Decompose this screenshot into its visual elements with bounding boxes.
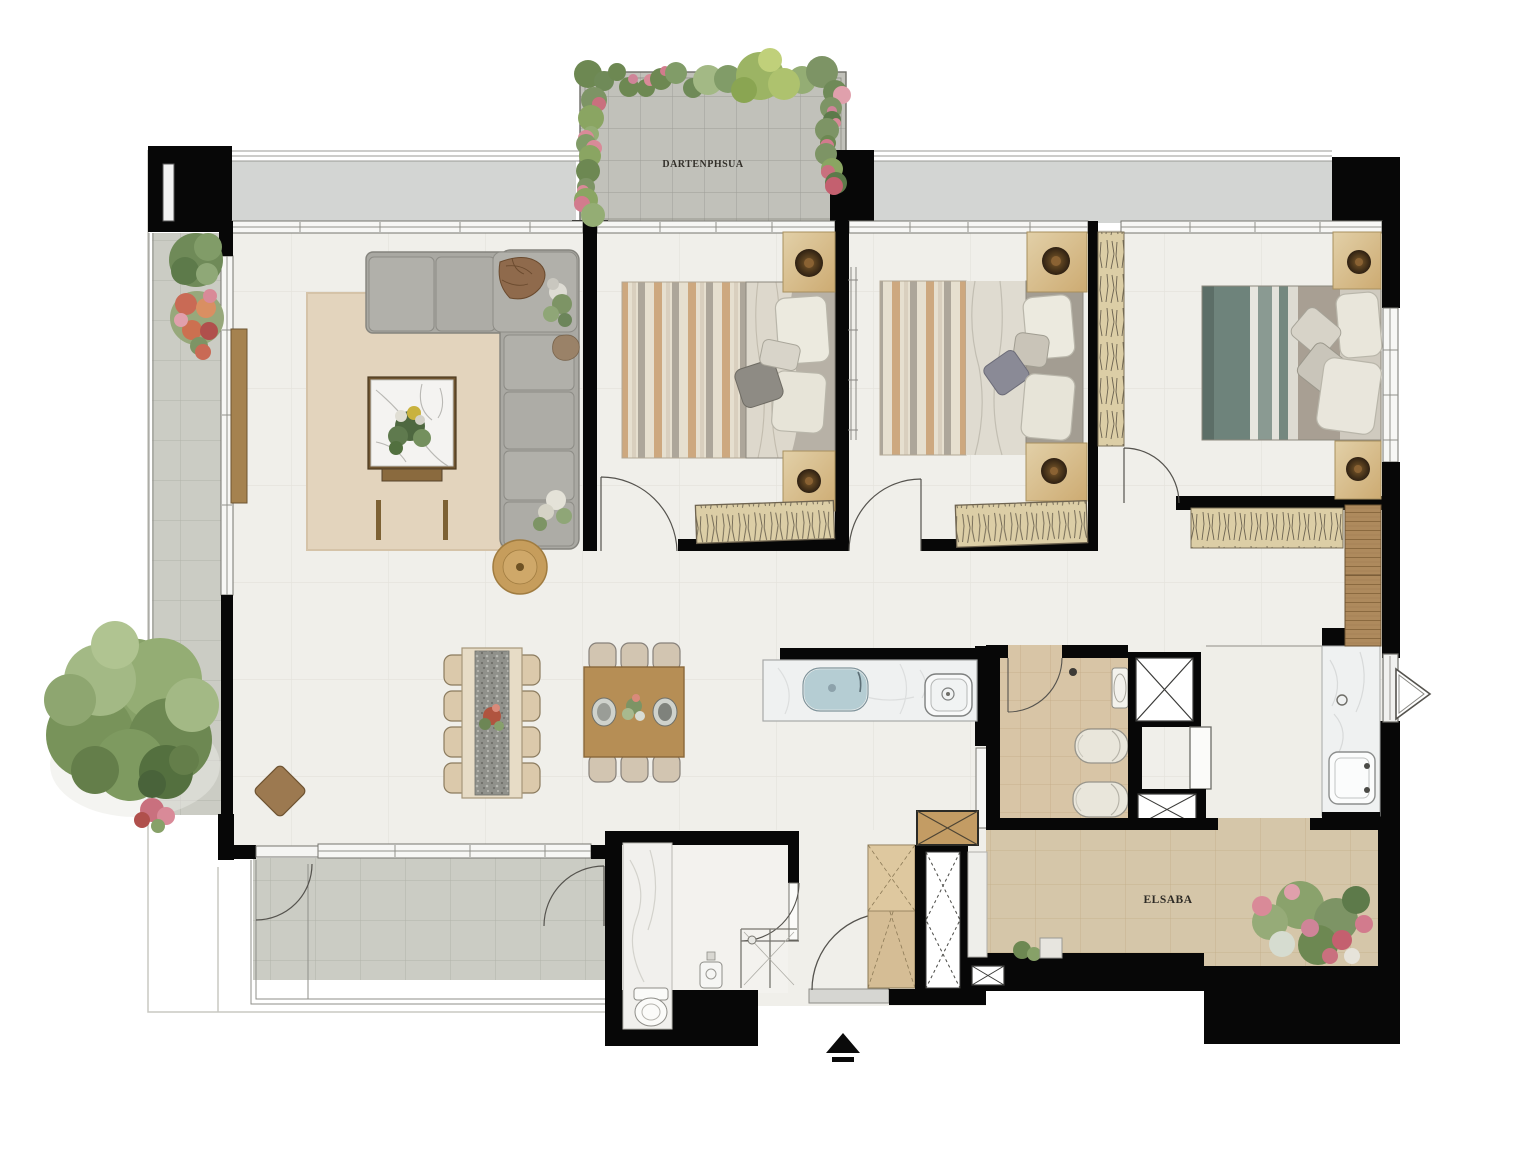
svg-text:DARTENPHSUA: DARTENPHSUA (662, 159, 744, 170)
svg-text:ELSABA: ELSABA (1143, 894, 1192, 906)
